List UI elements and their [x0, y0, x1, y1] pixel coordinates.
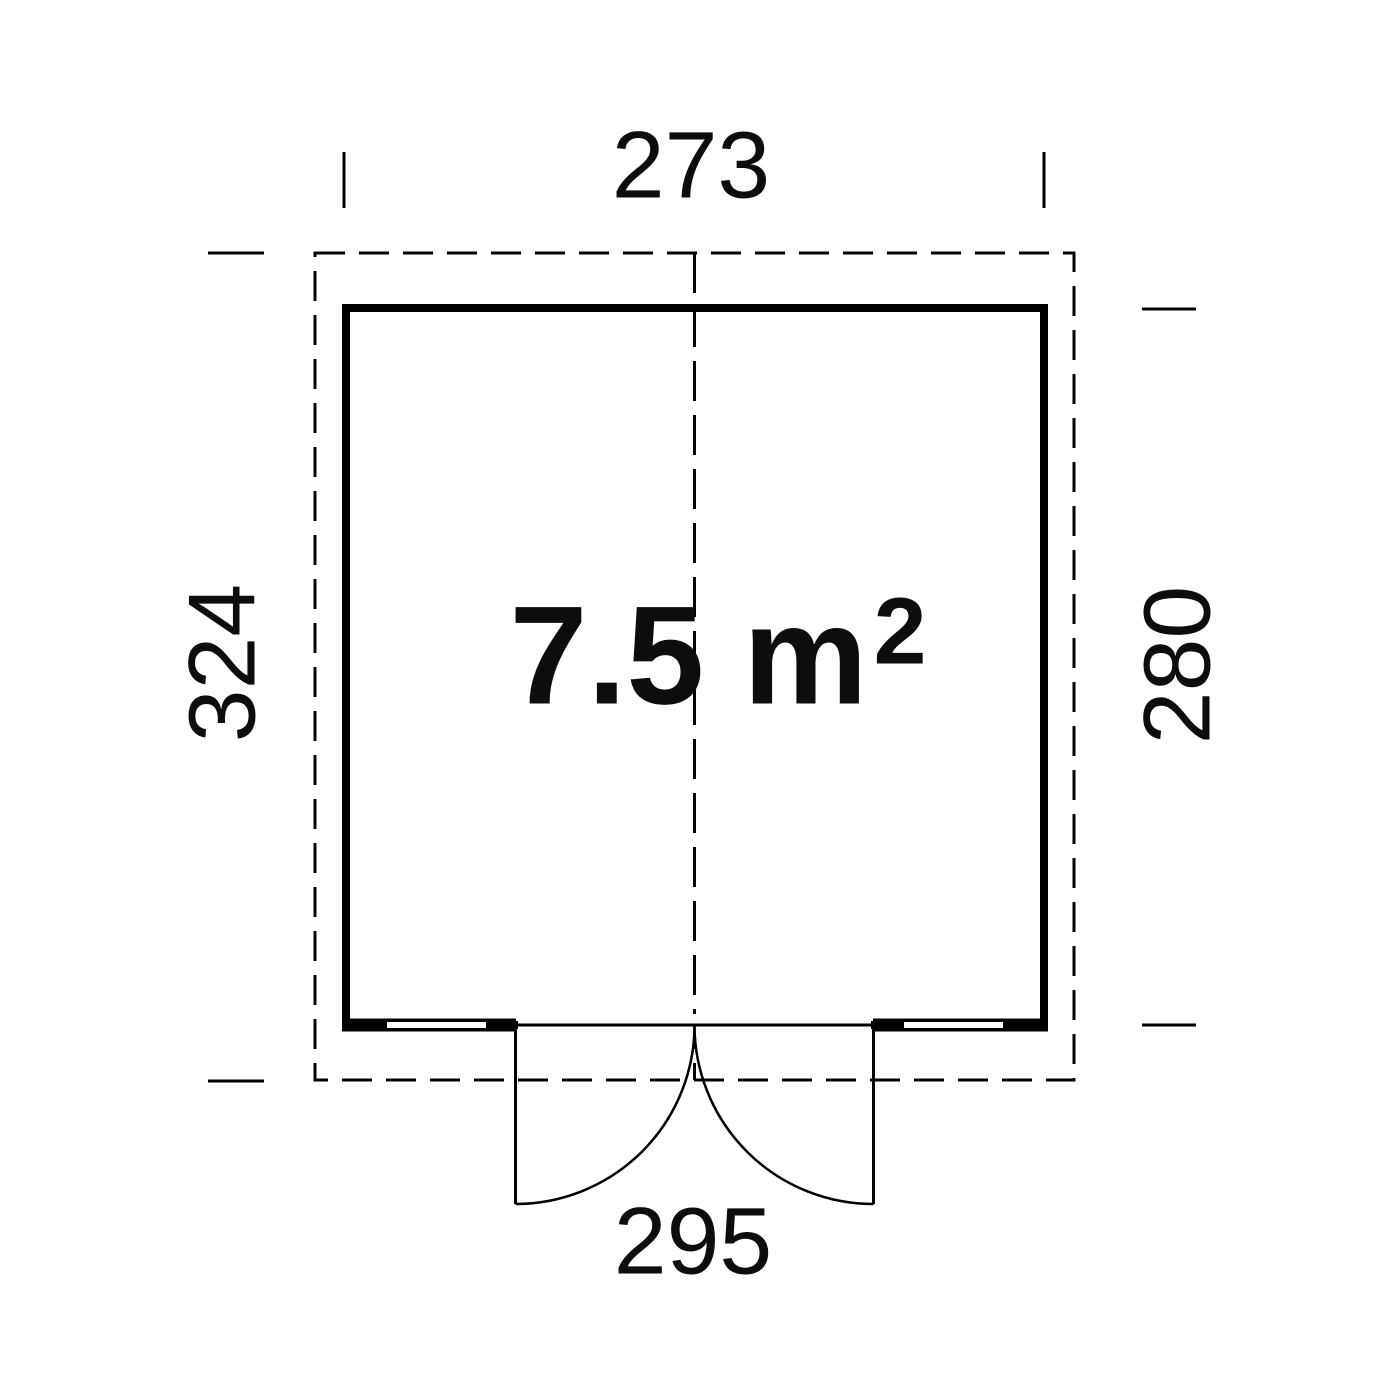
- dimension-label-bottom: 295: [614, 1195, 773, 1290]
- door-swing-arc-right: [694, 1025, 873, 1204]
- area-label: 7.5 m2: [510, 585, 927, 726]
- area-superscript: 2: [874, 579, 927, 685]
- door-swing-arc-left: [516, 1025, 695, 1204]
- area-value: 7.5 m: [510, 576, 868, 733]
- window-inset-left: [386, 1021, 487, 1029]
- window-inset-right: [903, 1021, 1004, 1029]
- floor-plan-canvas: 273 324 280 295 7.5 m2: [0, 0, 1400, 1400]
- dimension-label-left: 324: [176, 584, 271, 743]
- dimension-label-top: 273: [612, 119, 771, 214]
- dimension-label-right: 280: [1131, 586, 1226, 745]
